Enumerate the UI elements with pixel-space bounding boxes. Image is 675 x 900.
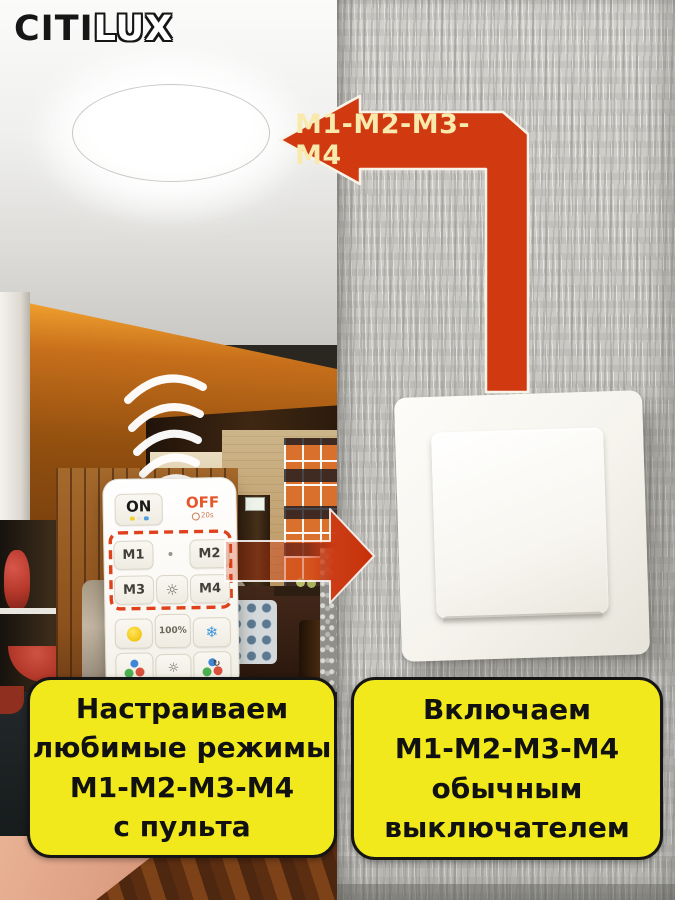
sun-outline-icon: ☼ (165, 580, 179, 598)
remote-brightness-button[interactable]: 100% (155, 614, 192, 649)
off-timer: 20s (192, 512, 214, 520)
modes-arrow-label: М1-М2-М3-М4 (295, 122, 513, 158)
exit-sign (245, 497, 265, 511)
center-dot (168, 552, 172, 556)
remote-off-button[interactable]: OFF 20s (178, 491, 227, 524)
remote-m4-button[interactable]: M4 (190, 574, 231, 604)
shelf-board (0, 608, 62, 614)
stone-pillar (320, 548, 337, 700)
caption-remote-modes: Настраиваем любимые режимы М1-М2-М3-М4 с… (27, 677, 337, 858)
remote-night-light-button[interactable]: ☼ (156, 575, 189, 605)
snowflake-icon: ❄ (205, 623, 218, 641)
wall-switch-rocker[interactable] (431, 427, 609, 618)
logo-citi: CITI (14, 9, 94, 49)
fruit-decor (296, 578, 305, 587)
ceiling-lamp (72, 84, 270, 182)
wall-switch-plate (394, 390, 650, 662)
color-cycle-icon: ↻ (202, 658, 222, 676)
caption-switch-modes: Включаем М1-М2-М3-М4 обычным выключателе… (351, 677, 663, 860)
on-color-dots (129, 516, 148, 520)
citilux-logo: CITILUX (14, 12, 173, 47)
promo-image: ON OFF 20s M1 M2 M3 ☼ M4 100% ❄ (0, 0, 675, 900)
timer-icon (192, 512, 200, 520)
remote-cool-light-button[interactable]: ❄ (193, 617, 232, 648)
off-label: OFF (186, 495, 220, 511)
night-light-icon: ☼ (168, 660, 180, 675)
on-label: ON (126, 499, 152, 514)
red-vase (4, 550, 30, 610)
wall-floor-line (337, 884, 675, 900)
remote-m1-button[interactable]: M1 (113, 540, 154, 570)
remote-warm-light-button[interactable] (115, 618, 154, 649)
remote-m2-button[interactable]: M2 (189, 539, 230, 569)
rgb-icon (124, 659, 144, 677)
logo-lux: LUX (94, 9, 173, 49)
remote-control: ON OFF 20s M1 M2 M3 ☼ M4 100% ❄ (102, 477, 240, 691)
remote-on-button[interactable]: ON (114, 493, 163, 526)
warm-light-icon (126, 626, 141, 641)
remote-m3-button[interactable]: M3 (114, 575, 155, 605)
